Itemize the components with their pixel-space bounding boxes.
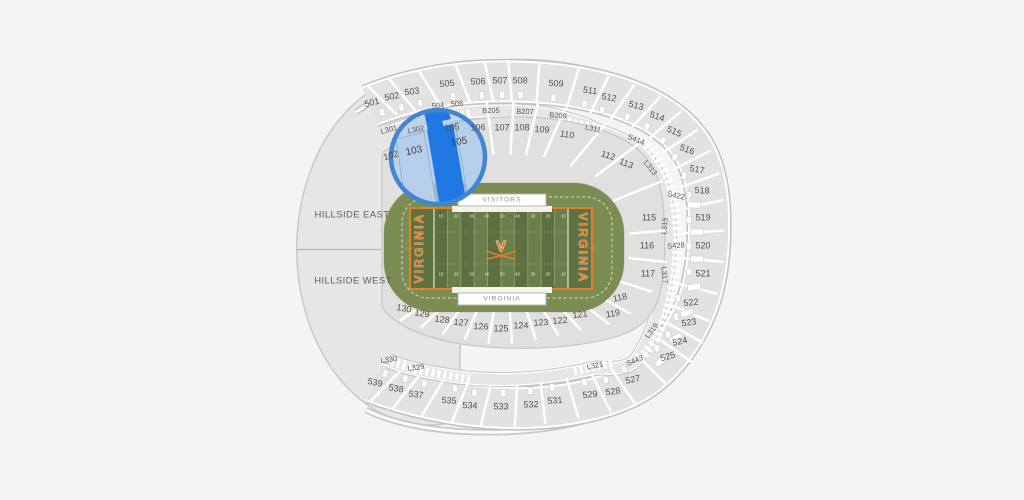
stair-entry <box>501 390 506 397</box>
stair-entry <box>550 384 555 391</box>
level-label-b209[interactable]: B209 <box>549 110 567 120</box>
yard-number: 40 <box>485 214 490 219</box>
level-label-b205[interactable]: B205 <box>482 106 500 116</box>
endzone-label-virginia: VIRGINIA <box>576 213 590 284</box>
section-label-108[interactable]: 108 <box>514 122 529 132</box>
section-label-537[interactable]: 537 <box>408 389 424 401</box>
stair-entry <box>673 313 679 321</box>
section-label-116[interactable]: 116 <box>640 240 654 250</box>
section-label-532[interactable]: 532 <box>523 399 538 410</box>
yard-number: 20 <box>454 272 459 277</box>
section-label-123[interactable]: 123 <box>533 317 549 328</box>
stair-entry <box>551 94 556 101</box>
yard-number: 10 <box>439 272 444 277</box>
section-label-505[interactable]: 505 <box>439 78 455 89</box>
yard-number: 30 <box>530 214 535 219</box>
section-label-110[interactable]: 110 <box>559 128 575 140</box>
stair-entry <box>500 91 505 98</box>
section-label-529[interactable]: 529 <box>582 389 598 401</box>
hillside-label-hillside-west[interactable]: HILLSIDE WEST <box>314 276 392 287</box>
stair-entry <box>421 380 427 388</box>
section-label-508[interactable]: 508 <box>512 75 527 85</box>
level-label-l315[interactable]: L315 <box>659 217 669 234</box>
level-label-s428[interactable]: S428 <box>667 240 685 250</box>
section-label-533[interactable]: 533 <box>493 401 508 411</box>
section-label-124[interactable]: 124 <box>513 320 528 330</box>
tunnel-marker <box>691 229 704 235</box>
stair-entry <box>518 91 523 98</box>
section-label-127[interactable]: 127 <box>453 317 469 328</box>
yard-number: 10 <box>439 214 444 219</box>
yard-number: 20 <box>454 214 459 219</box>
yard-number: 10 <box>561 272 566 277</box>
yard-number: 20 <box>546 214 551 219</box>
section-label-117[interactable]: 117 <box>641 268 655 278</box>
stair-entry <box>687 217 692 224</box>
section-label-528[interactable]: 528 <box>605 385 621 397</box>
midfield-logo-v: V <box>496 238 506 255</box>
section-label-531[interactable]: 531 <box>547 395 563 406</box>
stair-entry <box>687 242 692 249</box>
seatmap-canvas[interactable]: 102030405040302010102030405040302010 501… <box>0 0 1024 500</box>
section-label-121[interactable]: 121 <box>572 309 588 321</box>
section-label-518[interactable]: 518 <box>694 185 710 196</box>
section-label-522[interactable]: 522 <box>683 297 699 309</box>
hillside-label-hillside-east[interactable]: HILLSIDE EAST <box>315 210 390 221</box>
section-label-109[interactable]: 109 <box>534 124 550 135</box>
visitors-bench-bar <box>452 206 552 212</box>
stair-entry <box>382 370 388 378</box>
section-label-523[interactable]: 523 <box>681 316 697 328</box>
section-label-122[interactable]: 122 <box>552 315 568 326</box>
stadium-map[interactable]: 102030405040302010102030405040302010 501… <box>0 0 1024 500</box>
yard-number: 50 <box>500 214 505 219</box>
stair-entry <box>665 331 671 339</box>
yard-number: 10 <box>561 214 566 219</box>
stair-entry <box>681 172 687 180</box>
section-label-126[interactable]: 126 <box>473 321 488 332</box>
section-label-520[interactable]: 520 <box>695 240 710 250</box>
stair-entry <box>417 99 423 107</box>
level-label-504[interactable]: 504 <box>431 100 444 110</box>
stair-entry <box>452 385 457 392</box>
stair-entry <box>398 103 404 111</box>
stair-entry <box>621 365 627 373</box>
stair-entry <box>687 268 692 275</box>
section-label-105[interactable]: 105 <box>444 121 460 133</box>
tunnel-marker <box>688 202 701 208</box>
yard-number: 50 <box>500 272 505 277</box>
stair-entry <box>686 191 691 198</box>
section-label-503[interactable]: 503 <box>404 85 420 97</box>
section-label-511[interactable]: 511 <box>582 84 598 96</box>
section-label-128[interactable]: 128 <box>434 314 450 326</box>
field-box-label-virginia: VIRGINIA <box>483 296 520 303</box>
section-label-521[interactable]: 521 <box>695 268 710 278</box>
yard-number: 40 <box>515 272 520 277</box>
section-label-506[interactable]: 506 <box>470 76 485 87</box>
endzone-label-virginia: VIRGINIA <box>412 213 426 284</box>
section-label-509[interactable]: 509 <box>548 78 564 89</box>
yard-number: 30 <box>530 272 535 277</box>
section-label-535[interactable]: 535 <box>441 395 457 406</box>
yard-number: 40 <box>485 272 490 277</box>
section-label-106[interactable]: 106 <box>470 122 486 133</box>
yard-number: 20 <box>546 272 551 277</box>
yard-number: 30 <box>469 214 474 219</box>
stair-entry <box>479 92 484 99</box>
stair-entry <box>599 106 605 114</box>
section-label-507[interactable]: 507 <box>492 75 507 85</box>
stair-entry <box>582 100 588 108</box>
stair-entry <box>472 389 477 396</box>
section-label-519[interactable]: 519 <box>695 212 710 222</box>
yard-number: 30 <box>469 272 474 277</box>
level-label-l317[interactable]: L317 <box>659 266 669 283</box>
stair-entry <box>603 376 609 384</box>
stair-entry <box>675 295 681 302</box>
level-label-b207[interactable]: B207 <box>516 107 534 116</box>
stair-entry <box>528 387 533 394</box>
section-label-107[interactable]: 107 <box>494 122 509 132</box>
yard-number: 40 <box>515 214 520 219</box>
section-label-125[interactable]: 125 <box>493 323 508 333</box>
field-box-label-visitors: VISITORS <box>482 197 521 204</box>
stair-entry <box>582 378 588 385</box>
section-label-534[interactable]: 534 <box>462 400 477 411</box>
home-bench-bar <box>452 287 552 293</box>
tunnel-marker <box>691 256 704 262</box>
level-label-506[interactable]: 506 <box>450 99 463 109</box>
stair-entry <box>402 375 408 383</box>
section-label-129[interactable]: 129 <box>414 307 430 319</box>
section-label-115[interactable]: 115 <box>642 212 656 222</box>
